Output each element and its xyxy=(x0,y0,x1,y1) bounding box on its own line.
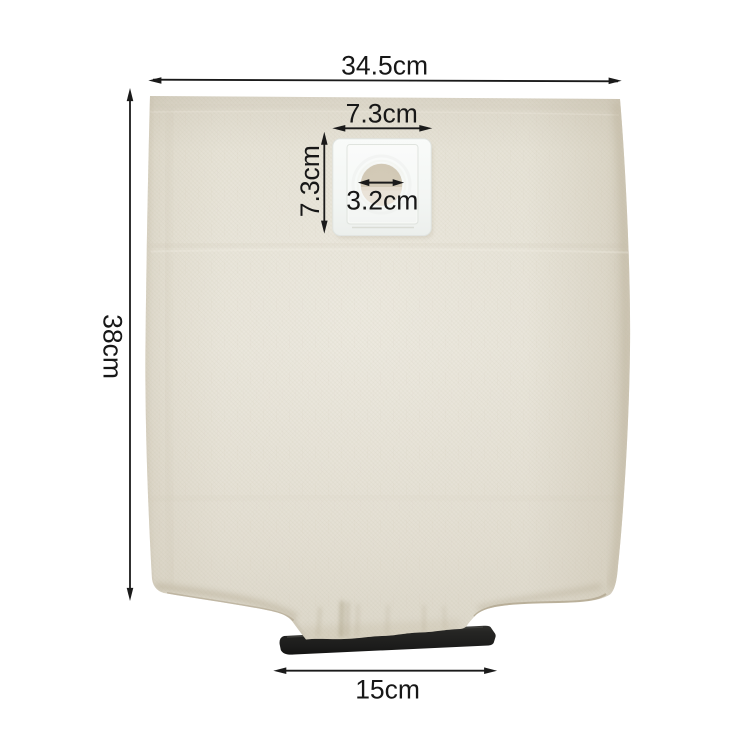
svg-text:3.2cm: 3.2cm xyxy=(346,186,418,216)
svg-text:15cm: 15cm xyxy=(355,675,420,705)
svg-text:34.5cm: 34.5cm xyxy=(341,51,428,81)
svg-text:7.3cm: 7.3cm xyxy=(346,99,418,129)
svg-text:7.3cm: 7.3cm xyxy=(295,145,325,217)
svg-text:38cm: 38cm xyxy=(97,314,127,379)
